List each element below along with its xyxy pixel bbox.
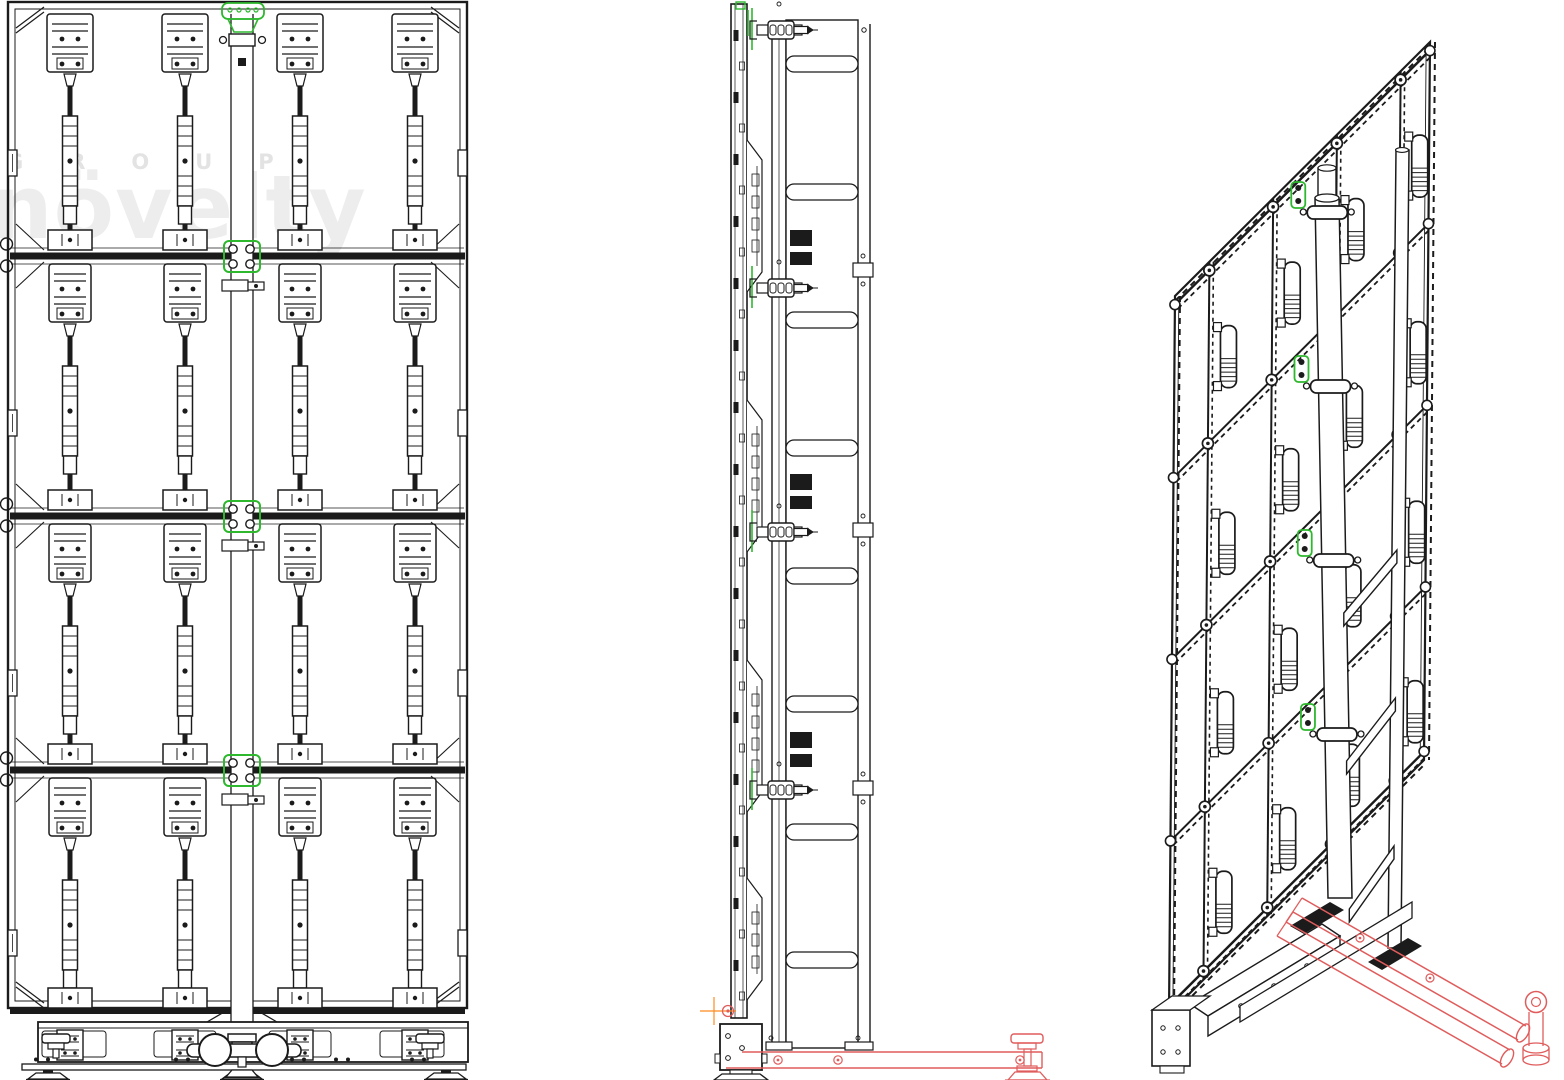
clamp-block bbox=[790, 474, 812, 490]
rod bbox=[413, 336, 418, 366]
rod bbox=[298, 474, 303, 490]
pole-collar bbox=[1307, 554, 1361, 567]
block-foot bbox=[1160, 1066, 1184, 1073]
ratchet-block bbox=[279, 778, 321, 836]
ladder-rung bbox=[786, 56, 858, 72]
clamp-bolt bbox=[246, 245, 254, 253]
turnbuckle-assembly bbox=[48, 778, 92, 1008]
panel-hardware-tick bbox=[734, 836, 739, 847]
clamp-pin bbox=[794, 787, 808, 794]
rod bbox=[68, 86, 73, 116]
collar-bolt bbox=[1303, 383, 1309, 389]
red-jack-3d bbox=[1523, 992, 1549, 1066]
taper bbox=[179, 74, 191, 86]
rail-knot bbox=[1168, 473, 1178, 483]
rod-coupler bbox=[179, 206, 192, 224]
panel-hardware-tick bbox=[734, 588, 739, 599]
base-hole bbox=[334, 1058, 338, 1062]
taper bbox=[179, 324, 191, 336]
taper bbox=[64, 838, 76, 850]
ratchet-block bbox=[392, 14, 438, 72]
center-foot bbox=[226, 1070, 258, 1077]
edge-latch bbox=[458, 930, 467, 956]
rod-coupler bbox=[179, 456, 192, 474]
base-hole bbox=[174, 1058, 178, 1062]
rod bbox=[183, 336, 188, 366]
panel-hardware-tick bbox=[734, 774, 739, 785]
hex-adjuster bbox=[228, 1034, 256, 1042]
rail-knot bbox=[1423, 219, 1433, 229]
taper bbox=[294, 838, 306, 850]
rod bbox=[298, 734, 303, 744]
turnbuckle-assembly bbox=[163, 264, 207, 510]
rod-coupler bbox=[179, 970, 192, 988]
jack-wheel bbox=[1526, 992, 1547, 1013]
rod bbox=[298, 850, 303, 880]
rod-coupler bbox=[294, 716, 307, 734]
isometric-view bbox=[1152, 42, 1549, 1073]
panel-hardware-tick bbox=[734, 712, 739, 723]
rail-knot bbox=[1419, 746, 1429, 756]
cad-three-view-drawing bbox=[0, 0, 1564, 1080]
collar-bolt bbox=[1351, 383, 1357, 389]
edge-hole bbox=[1, 260, 13, 272]
rail-splice bbox=[853, 523, 873, 537]
clamp-bolt bbox=[229, 520, 237, 528]
panel-hardware-tick bbox=[734, 650, 739, 661]
ratchet-block bbox=[394, 524, 436, 582]
rod-coupler bbox=[64, 456, 77, 474]
turnbuckle-assembly bbox=[278, 778, 322, 1008]
ratchet-block bbox=[47, 14, 93, 72]
clamp-bolt bbox=[246, 774, 254, 782]
panel-hardware-tick bbox=[734, 898, 739, 909]
corner-brace bbox=[16, 12, 44, 33]
block-foot bbox=[714, 1074, 768, 1080]
edge-hole bbox=[1, 498, 13, 510]
rail-knot bbox=[1425, 46, 1435, 56]
panel-hardware-tick bbox=[734, 340, 739, 351]
taper bbox=[409, 838, 421, 850]
clamp-bolt bbox=[246, 505, 254, 513]
clamp-body bbox=[768, 279, 794, 297]
edge-latch bbox=[458, 410, 467, 436]
base-block bbox=[1152, 1010, 1190, 1066]
rod bbox=[298, 596, 303, 626]
tube-end-cap bbox=[1498, 1047, 1517, 1069]
ratchet-block bbox=[164, 524, 206, 582]
pole-collar bbox=[1300, 206, 1354, 219]
clamp-block bbox=[790, 230, 812, 246]
edge-latch bbox=[458, 150, 467, 176]
rod bbox=[413, 474, 418, 490]
rod-coupler bbox=[64, 206, 77, 224]
rod bbox=[413, 86, 418, 116]
rod bbox=[183, 86, 188, 116]
collar-bolt bbox=[1355, 557, 1361, 563]
base-hole bbox=[422, 1058, 426, 1062]
corner-brace bbox=[16, 522, 44, 548]
taper bbox=[294, 584, 306, 596]
clamp-block bbox=[790, 754, 812, 767]
taper bbox=[294, 324, 306, 336]
ladder-rung bbox=[786, 184, 858, 200]
clamp-block bbox=[790, 496, 812, 509]
red-jack bbox=[1005, 1034, 1050, 1080]
panel-hardware-tick bbox=[734, 402, 739, 413]
ratchet-block bbox=[164, 264, 206, 322]
jack-handle bbox=[42, 1034, 70, 1043]
ratchet-block bbox=[49, 778, 91, 836]
rod bbox=[68, 734, 73, 744]
panel-bracket bbox=[747, 140, 762, 292]
base-hole bbox=[34, 1058, 38, 1062]
leveling-foot bbox=[424, 1070, 468, 1080]
rod bbox=[183, 224, 188, 230]
clamp-body bbox=[768, 21, 794, 39]
rod-coupler bbox=[409, 456, 422, 474]
taper bbox=[179, 838, 191, 850]
rail-foot bbox=[766, 1042, 792, 1050]
corner-brace bbox=[16, 224, 44, 250]
rod-coupler bbox=[294, 970, 307, 988]
clamp-bolt bbox=[229, 774, 237, 782]
panel-hardware-tick bbox=[734, 30, 739, 41]
base-hole bbox=[290, 1058, 294, 1062]
clamp-pin bbox=[794, 285, 808, 292]
panel-hardware-tick bbox=[734, 278, 739, 289]
collar-bolt bbox=[259, 37, 266, 44]
panel-hardware-tick bbox=[734, 526, 739, 537]
edge-hole bbox=[1, 520, 13, 532]
wheel bbox=[256, 1034, 288, 1066]
rod-coupler bbox=[409, 206, 422, 224]
rod-coupler bbox=[179, 716, 192, 734]
pole-collar bbox=[229, 34, 255, 46]
base-hole bbox=[302, 1058, 306, 1062]
taper bbox=[409, 324, 421, 336]
rod bbox=[68, 596, 73, 626]
collar-bolt bbox=[1358, 731, 1364, 737]
latch-plate bbox=[222, 280, 248, 291]
rod-coupler bbox=[294, 206, 307, 224]
panel-hardware-tick bbox=[734, 154, 739, 165]
pole-collar bbox=[1310, 728, 1364, 741]
clamp-bolt bbox=[246, 520, 254, 528]
ratchet-block bbox=[49, 524, 91, 582]
collar-bolt bbox=[220, 37, 227, 44]
rod bbox=[68, 224, 73, 230]
taper bbox=[294, 74, 306, 86]
taper bbox=[64, 74, 76, 86]
turnbuckle-assembly bbox=[278, 264, 322, 510]
panel-hardware-tick bbox=[734, 92, 739, 103]
rod bbox=[183, 474, 188, 490]
leveling-foot bbox=[26, 1070, 70, 1080]
rod bbox=[183, 734, 188, 744]
clamp-block bbox=[790, 252, 812, 265]
ratchet-block bbox=[279, 524, 321, 582]
corner-brace bbox=[16, 484, 44, 510]
turnbuckle-assembly bbox=[163, 778, 207, 1008]
base-hole bbox=[346, 1058, 350, 1062]
ladder-rung bbox=[786, 824, 858, 840]
rod-coupler bbox=[409, 970, 422, 988]
ratchet-block bbox=[277, 14, 323, 72]
technical-drawing-canvas: GROUP növelty bbox=[0, 0, 1564, 1080]
front-view bbox=[1, 2, 469, 1080]
rod bbox=[413, 734, 418, 744]
rod-coupler bbox=[409, 716, 422, 734]
rod-coupler bbox=[64, 970, 77, 988]
turnbuckle-assembly bbox=[162, 14, 208, 250]
rail-splice bbox=[853, 781, 873, 795]
turnbuckle-assembly bbox=[163, 524, 207, 764]
ladder-rung bbox=[786, 568, 858, 584]
jack-handle bbox=[1011, 1034, 1043, 1043]
edge-latch bbox=[458, 670, 467, 696]
turnbuckle-assembly bbox=[393, 524, 437, 764]
panel-hardware-tick bbox=[734, 216, 739, 227]
clamp-pin bbox=[794, 27, 808, 34]
clamp-body bbox=[768, 781, 794, 799]
panel-hardware-tick bbox=[734, 464, 739, 475]
ladder-rung bbox=[786, 440, 858, 456]
rod-coupler bbox=[294, 456, 307, 474]
wheel bbox=[199, 1034, 231, 1066]
clamp-bolt bbox=[229, 759, 237, 767]
turnbuckle-assembly bbox=[48, 524, 92, 764]
rod bbox=[68, 850, 73, 880]
turnbuckle-assembly bbox=[278, 524, 322, 764]
corner-brace bbox=[16, 262, 44, 288]
screen-panel-edge bbox=[731, 4, 747, 1018]
corner-brace bbox=[16, 776, 44, 802]
base-hole bbox=[46, 1058, 50, 1062]
edge-hole bbox=[1, 238, 13, 250]
rod bbox=[298, 86, 303, 116]
edge-hole bbox=[1, 774, 13, 786]
taper bbox=[64, 584, 76, 596]
rail-knot bbox=[1167, 654, 1177, 664]
rod bbox=[183, 596, 188, 626]
ratchet-block bbox=[49, 264, 91, 322]
clamp-pin bbox=[794, 529, 808, 536]
corner-brace bbox=[16, 987, 44, 1008]
turnbuckle-assembly bbox=[47, 14, 93, 250]
collar-bolt bbox=[1300, 209, 1306, 215]
jack-handle bbox=[416, 1034, 444, 1043]
turnbuckle-assembly bbox=[393, 778, 437, 1008]
latch-plate bbox=[222, 540, 248, 551]
rod bbox=[413, 224, 418, 230]
turnbuckle-assembly bbox=[48, 264, 92, 510]
corner-brace bbox=[16, 738, 44, 764]
rail-splice bbox=[853, 263, 873, 277]
collar-bolt bbox=[1307, 557, 1313, 563]
clamp-bolt bbox=[246, 759, 254, 767]
rod-coupler bbox=[64, 716, 77, 734]
ratchet-block bbox=[164, 778, 206, 836]
corner-brace bbox=[16, 982, 44, 1003]
collar-bolt bbox=[1310, 731, 1316, 737]
edge-hole bbox=[1, 752, 13, 764]
rail-knot bbox=[1422, 400, 1432, 410]
rod bbox=[183, 850, 188, 880]
rod bbox=[298, 224, 303, 230]
base-hole bbox=[410, 1058, 414, 1062]
ladder-rung bbox=[786, 696, 858, 712]
clamp-body bbox=[768, 523, 794, 541]
rail-knot bbox=[1420, 582, 1430, 592]
panel-bracket bbox=[747, 878, 762, 1000]
clamp-bolt bbox=[229, 260, 237, 268]
taper bbox=[409, 74, 421, 86]
taper bbox=[64, 324, 76, 336]
rod bbox=[68, 336, 73, 366]
clamp-block bbox=[790, 732, 812, 748]
panel-strip bbox=[731, 4, 747, 1018]
ladder-rung bbox=[786, 952, 858, 968]
jack-foot bbox=[1523, 1043, 1549, 1053]
corner-brace bbox=[16, 7, 44, 28]
taper bbox=[179, 584, 191, 596]
jack-foot bbox=[1008, 1072, 1047, 1080]
rail-foot bbox=[845, 1042, 873, 1050]
ratchet-block bbox=[394, 778, 436, 836]
ratchet-block bbox=[394, 264, 436, 322]
rod bbox=[68, 474, 73, 490]
pole-collar bbox=[1303, 380, 1357, 393]
ladder-rung bbox=[786, 312, 858, 328]
turnbuckle-assembly bbox=[393, 264, 437, 510]
rod bbox=[298, 336, 303, 366]
taper bbox=[409, 584, 421, 596]
rod bbox=[413, 596, 418, 626]
clamp-bolt bbox=[229, 245, 237, 253]
base-hole bbox=[186, 1058, 190, 1062]
turnbuckle-assembly bbox=[392, 14, 438, 250]
ratchet-block bbox=[279, 264, 321, 322]
clamp-bolt bbox=[246, 260, 254, 268]
turnbuckle-assembly bbox=[277, 14, 323, 250]
collar-bolt bbox=[1348, 209, 1354, 215]
ratchet-block bbox=[162, 14, 208, 72]
latch-plate bbox=[222, 794, 248, 805]
panel-hardware-tick bbox=[734, 960, 739, 971]
clamp-bolt bbox=[229, 505, 237, 513]
rail-knot bbox=[1165, 836, 1175, 846]
rod bbox=[413, 850, 418, 880]
rail-knot bbox=[1170, 300, 1180, 310]
side-view bbox=[700, 2, 1050, 1080]
ladder-rung-3d bbox=[1349, 846, 1394, 922]
